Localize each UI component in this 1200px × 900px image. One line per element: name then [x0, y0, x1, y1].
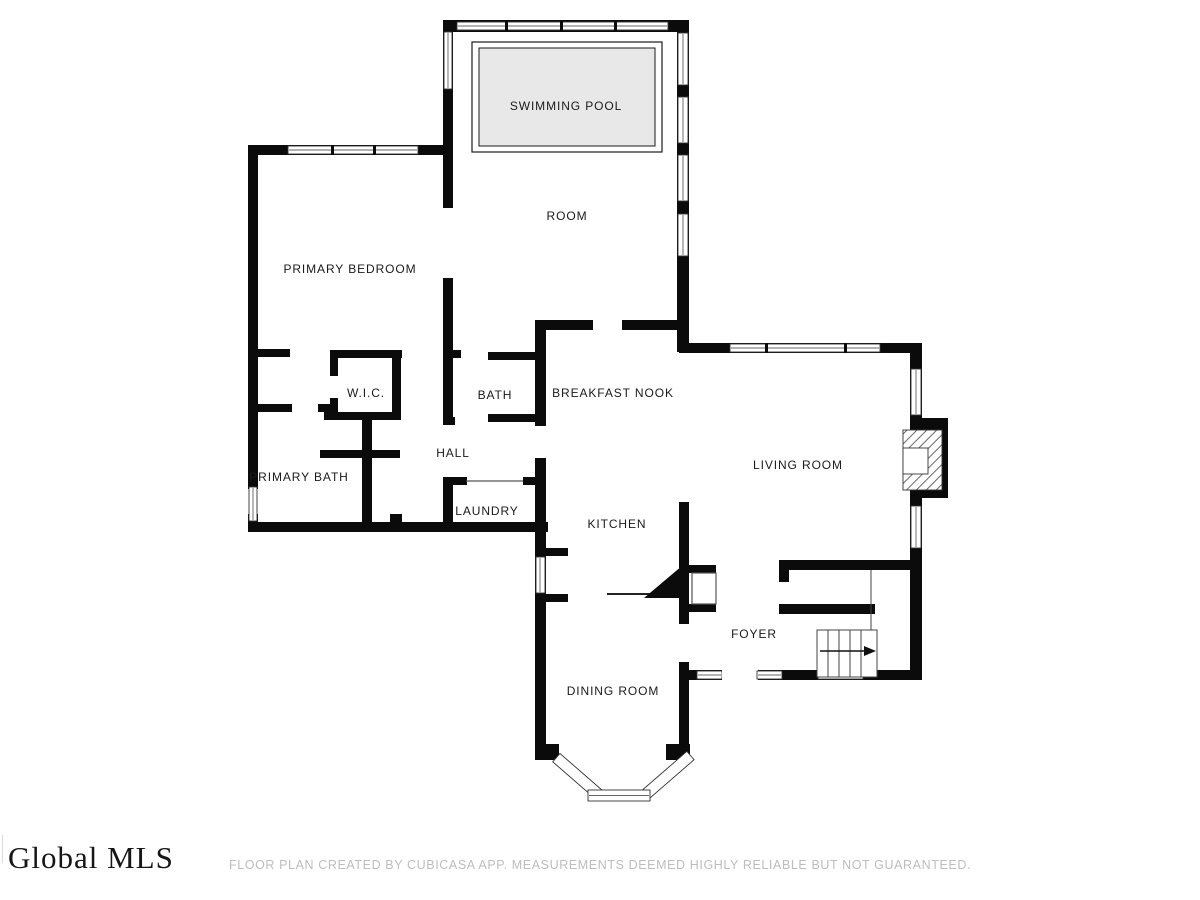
- room-label-bath: BATH: [478, 388, 513, 402]
- room-label-breakfast-nook: BREAKFAST NOOK: [552, 386, 674, 400]
- room-label-primary-bedroom: PRIMARY BEDROOM: [283, 262, 416, 276]
- fireplace-icon: [903, 418, 948, 498]
- room-label-pool-room: ROOM: [547, 209, 588, 223]
- room-label-kitchen: KITCHEN: [588, 517, 647, 531]
- disclaimer-text: FLOOR PLAN CREATED BY CUBICASA APP. MEAS…: [0, 858, 1200, 872]
- kitchen-counter-icon: [607, 560, 689, 598]
- room-labels: SWIMMING POOLROOMPRIMARY BEDROOMW.I.C.BA…: [249, 99, 843, 698]
- room-label-primary-bath: PRIMARY BATH: [249, 470, 349, 484]
- room-label-hall: HALL: [436, 446, 470, 460]
- room-label-wic: W.I.C.: [347, 386, 385, 400]
- room-label-laundry: LAUNDRY: [455, 504, 518, 518]
- room-label-living-room: LIVING ROOM: [753, 458, 843, 472]
- room-label-foyer: FOYER: [731, 627, 777, 641]
- floorplan-page: SWIMMING POOLROOMPRIMARY BEDROOMW.I.C.BA…: [0, 0, 1200, 900]
- room-label-swimming-pool: SWIMMING POOL: [510, 99, 622, 113]
- room-label-dining-room: DINING ROOM: [567, 684, 660, 698]
- floorplan-drawing: SWIMMING POOLROOMPRIMARY BEDROOMW.I.C.BA…: [0, 0, 1200, 900]
- pool-icon: [472, 42, 662, 152]
- staircase-icon: [817, 570, 877, 677]
